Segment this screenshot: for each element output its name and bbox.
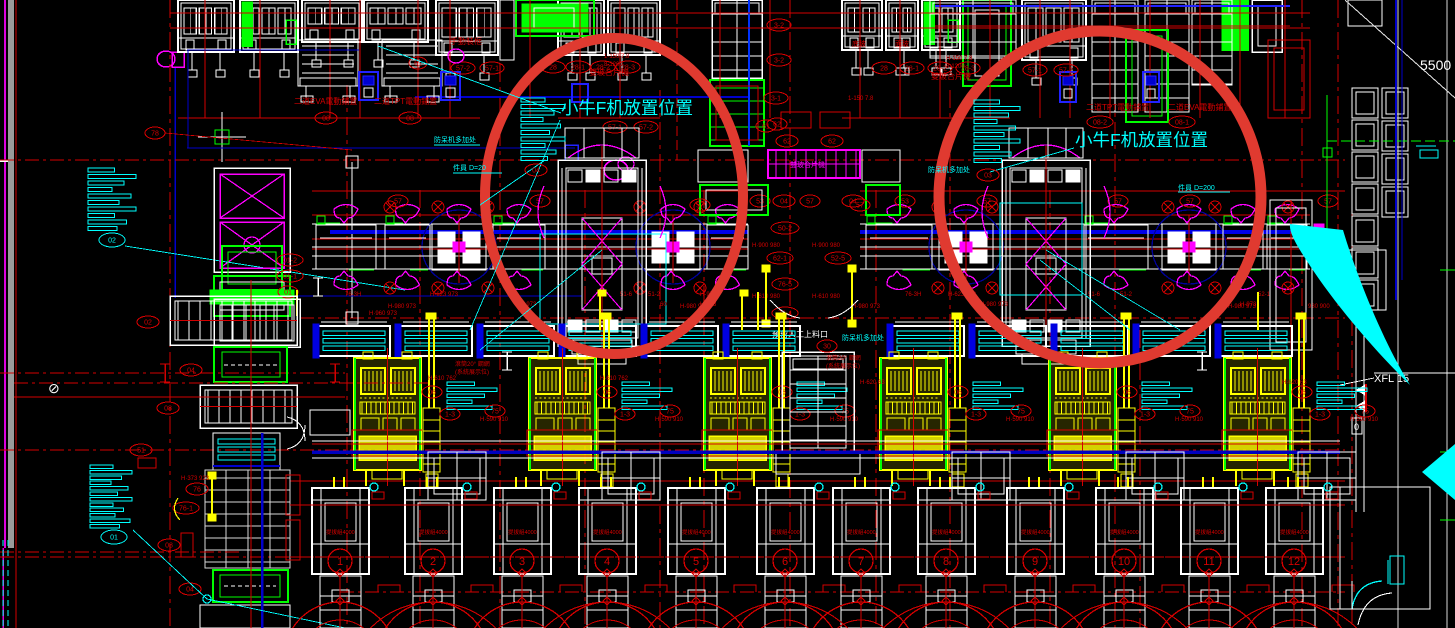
svg-text:H·620 63: H·620 63 bbox=[860, 380, 885, 386]
svg-text:50-2: 50-2 bbox=[778, 226, 792, 233]
svg-text:H-150 7.8: H-150 7.8 bbox=[946, 56, 973, 62]
svg-text:28-3: 28-3 bbox=[961, 66, 975, 73]
svg-text:提拔組4000: 提拔組4000 bbox=[419, 528, 448, 536]
svg-text:10: 10 bbox=[1118, 556, 1130, 568]
svg-text:28-3: 28-3 bbox=[621, 65, 635, 72]
svg-text:57: 57 bbox=[983, 199, 991, 206]
svg-text:01: 01 bbox=[110, 535, 118, 542]
svg-text:H·610 762: H·610 762 bbox=[600, 376, 629, 382]
svg-text:H·590 910: H·590 910 bbox=[655, 417, 684, 423]
svg-text:62-1: 62-1 bbox=[773, 256, 787, 263]
svg-text:08: 08 bbox=[406, 116, 414, 123]
svg-text:57-2: 57-2 bbox=[1059, 68, 1073, 75]
svg-text:1-150 7.8: 1-150 7.8 bbox=[604, 54, 630, 60]
svg-text:H·900 980: H·900 980 bbox=[752, 243, 781, 249]
svg-text:提拔組4000: 提拔組4000 bbox=[847, 528, 876, 536]
svg-text:76-1: 76-1 bbox=[179, 506, 193, 513]
svg-text:12: 12 bbox=[1288, 556, 1300, 568]
svg-text:04: 04 bbox=[186, 587, 194, 594]
svg-text:二道TPT電動鋪置: 二道TPT電動鋪置 bbox=[1086, 102, 1149, 112]
svg-text:提拔組4000: 提拔組4000 bbox=[593, 528, 622, 536]
svg-text:5: 5 bbox=[693, 556, 699, 568]
svg-text:03: 03 bbox=[984, 173, 992, 180]
svg-text:75: 75 bbox=[1361, 409, 1369, 416]
svg-text:雙玻合片機: 雙玻合片機 bbox=[931, 71, 971, 81]
svg-text:件員 D=200: 件員 D=200 bbox=[1178, 183, 1215, 192]
svg-text:手動裝框: 手動裝框 bbox=[450, 36, 482, 46]
svg-text:06: 06 bbox=[428, 390, 436, 397]
svg-text:1-3: 1-3 bbox=[1140, 412, 1150, 419]
svg-text:1-3: 1-3 bbox=[795, 412, 805, 419]
svg-text:75: 75 bbox=[1017, 409, 1025, 416]
svg-text:78: 78 bbox=[151, 131, 159, 138]
svg-text:28: 28 bbox=[549, 65, 557, 72]
svg-text:57: 57 bbox=[1114, 199, 1122, 206]
svg-text:H·590 910: H·590 910 bbox=[480, 417, 509, 423]
svg-text:H-623 973: H-623 973 bbox=[430, 292, 459, 298]
svg-text:提拔組4000: 提拔組4000 bbox=[932, 528, 961, 536]
svg-text:H-980 973: H-980 973 bbox=[388, 304, 417, 310]
svg-text:57: 57 bbox=[856, 203, 864, 210]
svg-text:小牛F机放置位置: 小牛F机放置位置 bbox=[561, 98, 693, 118]
svg-text:3-2: 3-2 bbox=[774, 23, 784, 30]
svg-text:75: 75 bbox=[666, 409, 674, 416]
svg-text:H·960 973: H·960 973 bbox=[369, 311, 398, 317]
svg-text:件員 D=20: 件員 D=20 bbox=[453, 163, 486, 172]
svg-text:(系統展示位): (系統展示位) bbox=[455, 368, 489, 376]
svg-text:提拔組4000: 提拔組4000 bbox=[508, 528, 537, 536]
svg-text:H·610 762: H·610 762 bbox=[428, 376, 457, 382]
svg-text:28-2: 28-2 bbox=[596, 65, 610, 72]
svg-text:28: 28 bbox=[880, 66, 888, 73]
svg-text:57: 57 bbox=[806, 199, 814, 206]
svg-text:1-3: 1-3 bbox=[445, 412, 455, 419]
svg-text:H-973: H-973 bbox=[1240, 302, 1257, 308]
svg-text:底玻: 底玻 bbox=[852, 39, 866, 48]
svg-text:02: 02 bbox=[108, 238, 116, 245]
svg-text:提拔組4000: 提拔組4000 bbox=[682, 528, 711, 536]
svg-text:62: 62 bbox=[828, 139, 836, 146]
svg-text:08: 08 bbox=[322, 116, 330, 123]
svg-text:28-2: 28-2 bbox=[933, 66, 947, 73]
svg-text:57-1: 57-1 bbox=[485, 66, 499, 73]
svg-text:H·900 980: H·900 980 bbox=[812, 243, 841, 249]
svg-text:面玻: 面玻 bbox=[895, 39, 909, 48]
svg-text:08: 08 bbox=[165, 543, 173, 550]
svg-text:3-1: 3-1 bbox=[771, 96, 781, 103]
svg-text:提拔組4000: 提拔組4000 bbox=[326, 528, 355, 536]
svg-text:76: 76 bbox=[193, 487, 201, 494]
svg-text:57-2: 57-2 bbox=[456, 66, 470, 73]
svg-text:06: 06 bbox=[954, 390, 962, 397]
svg-text:76-3H: 76-3H bbox=[905, 292, 921, 298]
svg-text:8: 8 bbox=[943, 556, 949, 568]
svg-text:二道TPT電動鋪置: 二道TPT電動鋪置 bbox=[374, 96, 437, 106]
svg-text:H·610 980: H·610 980 bbox=[812, 294, 841, 300]
svg-text:小牛F机放置位置: 小牛F机放置位置 bbox=[1075, 130, 1208, 150]
svg-text:60: 60 bbox=[660, 302, 667, 308]
svg-text:提拔組4000: 提拔組4000 bbox=[771, 528, 800, 536]
svg-text:3: 3 bbox=[519, 556, 525, 568]
svg-text:滾筒20° 鋼網: 滾筒20° 鋼網 bbox=[455, 360, 490, 368]
svg-text:H·590 910: H·590 910 bbox=[1006, 417, 1035, 423]
svg-text:57: 57 bbox=[536, 199, 544, 206]
svg-text:57: 57 bbox=[1186, 199, 1194, 206]
svg-text:57-2: 57-2 bbox=[639, 125, 653, 132]
svg-text:防呆机多加处: 防呆机多加处 bbox=[842, 333, 884, 342]
svg-text:76-5: 76-5 bbox=[778, 282, 792, 289]
svg-text:51: 51 bbox=[137, 448, 145, 455]
svg-text:提拔組4000: 提拔組4000 bbox=[1195, 528, 1224, 536]
svg-text:H-980 973: H-980 973 bbox=[852, 304, 881, 310]
svg-text:提拔組4000: 提拔組4000 bbox=[1110, 528, 1139, 536]
svg-text:52-1: 52-1 bbox=[1258, 292, 1271, 298]
svg-text:57: 57 bbox=[1324, 199, 1332, 206]
svg-text:04: 04 bbox=[532, 168, 540, 175]
svg-text:1-150 7.8: 1-150 7.8 bbox=[848, 96, 874, 102]
svg-text:57: 57 bbox=[394, 199, 402, 206]
svg-text:滾筒20° 鋼網: 滾筒20° 鋼網 bbox=[826, 354, 861, 362]
svg-text:06: 06 bbox=[1123, 390, 1131, 397]
svg-text:28-1: 28-1 bbox=[905, 66, 919, 73]
svg-text:57-1: 57-1 bbox=[1028, 68, 1042, 75]
svg-text:52-5: 52-5 bbox=[831, 256, 845, 263]
svg-text:01-2: 01-2 bbox=[283, 258, 297, 265]
svg-text:04: 04 bbox=[780, 199, 788, 206]
svg-text:H·590 910: H·590 910 bbox=[1350, 417, 1379, 423]
svg-text:2: 2 bbox=[430, 556, 436, 568]
svg-text:⊘: ⊘ bbox=[48, 380, 60, 396]
svg-text:53: 53 bbox=[756, 199, 764, 206]
svg-text:76-3H: 76-3H bbox=[345, 292, 361, 298]
svg-text:H·620 63: H·620 63 bbox=[1282, 380, 1307, 386]
svg-text:1-3: 1-3 bbox=[620, 412, 630, 419]
svg-text:7: 7 bbox=[858, 556, 864, 568]
svg-text:08-1: 08-1 bbox=[1175, 120, 1189, 127]
svg-text:5500: 5500 bbox=[1420, 57, 1451, 73]
svg-text:0: 0 bbox=[1354, 422, 1359, 432]
svg-text:30: 30 bbox=[823, 344, 831, 351]
svg-text:(系統展示位): (系統展示位) bbox=[826, 362, 860, 370]
svg-text:1-3: 1-3 bbox=[1315, 412, 1325, 419]
svg-text:06: 06 bbox=[1298, 390, 1306, 397]
svg-text:02: 02 bbox=[144, 320, 152, 327]
svg-text:1: 1 bbox=[337, 556, 343, 568]
svg-text:04: 04 bbox=[187, 368, 195, 375]
svg-text:H·590 910: H·590 910 bbox=[1175, 417, 1204, 423]
svg-text:08-2: 08-2 bbox=[1093, 120, 1107, 127]
svg-text:01-1: 01-1 bbox=[283, 274, 297, 281]
svg-text:06: 06 bbox=[603, 390, 611, 397]
svg-text:57: 57 bbox=[696, 203, 704, 210]
svg-text:75: 75 bbox=[491, 409, 499, 416]
svg-text:提拔組4000: 提拔組4000 bbox=[1280, 528, 1309, 536]
svg-text:6: 6 bbox=[782, 556, 788, 568]
svg-text:11: 11 bbox=[1203, 556, 1214, 568]
svg-text:雙玻合片機: 雙玻合片機 bbox=[790, 160, 825, 169]
svg-text:4: 4 bbox=[604, 556, 610, 568]
svg-text:防呆机多加处: 防呆机多加处 bbox=[928, 165, 970, 174]
svg-text:9: 9 bbox=[1032, 556, 1038, 568]
svg-text:H·373 923: H·373 923 bbox=[181, 476, 210, 482]
svg-text:75: 75 bbox=[1186, 409, 1194, 416]
svg-text:51-2: 51-2 bbox=[648, 292, 661, 298]
svg-text:3-2: 3-2 bbox=[774, 58, 784, 65]
svg-text:防呆机多加处: 防呆机多加处 bbox=[434, 135, 476, 144]
svg-text:08: 08 bbox=[164, 406, 172, 413]
svg-text:61: 61 bbox=[762, 124, 770, 131]
svg-text:62: 62 bbox=[783, 139, 791, 146]
svg-text:二道EVA電動鋪置: 二道EVA電動鋪置 bbox=[1168, 102, 1231, 112]
svg-text:1-3: 1-3 bbox=[971, 412, 981, 419]
svg-text:提拔組4000: 提拔組4000 bbox=[1021, 528, 1050, 536]
svg-text:二道EVA電動鋪置: 二道EVA電動鋪置 bbox=[294, 96, 357, 106]
svg-text:28-1: 28-1 bbox=[571, 65, 585, 72]
svg-text:53: 53 bbox=[901, 199, 909, 206]
